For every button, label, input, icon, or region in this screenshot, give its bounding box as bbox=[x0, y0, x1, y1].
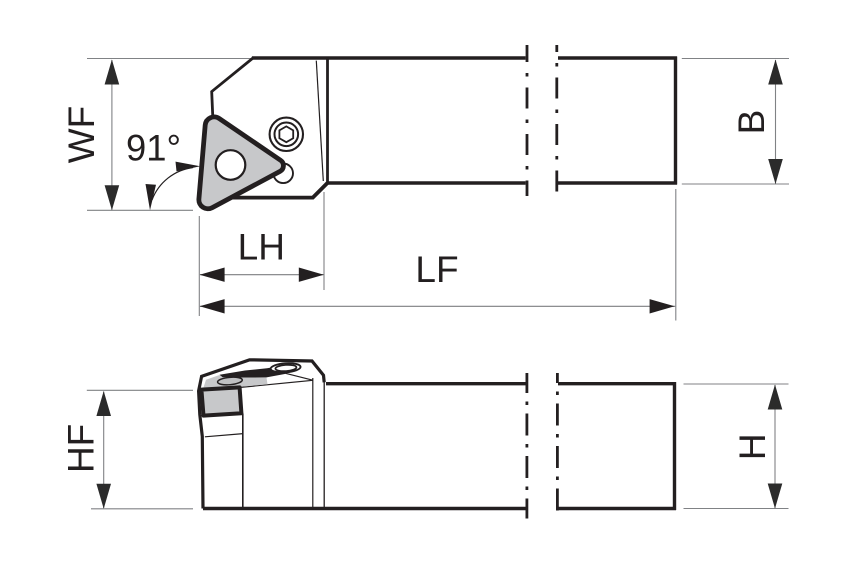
svg-text:HF: HF bbox=[60, 424, 101, 473]
svg-text:91°: 91° bbox=[126, 128, 181, 169]
svg-text:H: H bbox=[732, 433, 773, 460]
svg-text:LH: LH bbox=[238, 226, 285, 267]
svg-text:WF: WF bbox=[61, 106, 102, 164]
svg-text:B: B bbox=[731, 110, 772, 135]
svg-text:LF: LF bbox=[415, 249, 458, 290]
